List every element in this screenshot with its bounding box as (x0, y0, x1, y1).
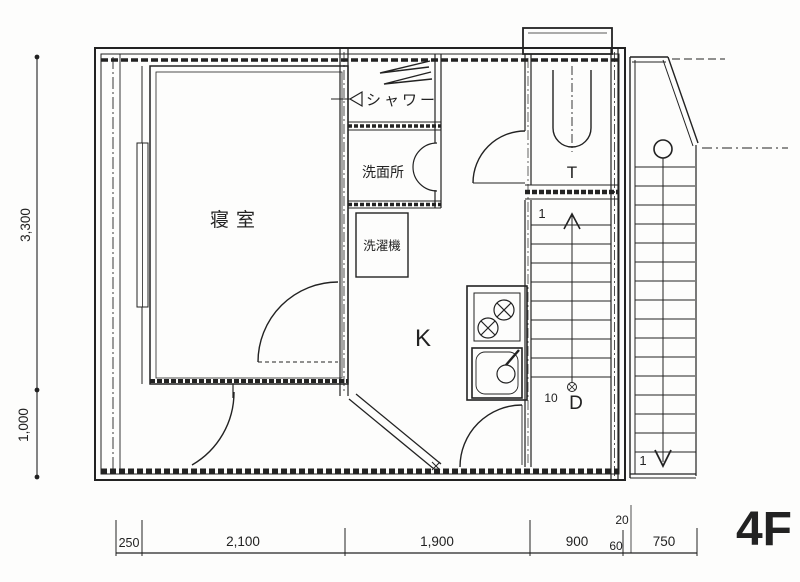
kitchen: K (349, 286, 527, 470)
dim-left-upper: 3,300 (18, 208, 33, 242)
dim-bottom-250: 250 (119, 536, 140, 550)
dim-bottom-20: 20 (615, 513, 629, 527)
dim-left-lower: 1,000 (16, 408, 31, 442)
dim-bottom-750: 750 (653, 534, 676, 549)
washroom-door (413, 143, 437, 191)
washroom: 洗面所 (348, 143, 441, 208)
dim-bottom-2100: 2,100 (226, 534, 260, 549)
interior-stairs-step-first: 1 (538, 206, 545, 221)
bedroom-window (137, 66, 148, 384)
interior-stairs: 1 10 D (531, 206, 611, 414)
toilet-door (473, 131, 525, 183)
washroom-label: 洗面所 (362, 164, 404, 180)
toilet-room: T (473, 54, 618, 467)
dim-bottom-900: 900 (566, 534, 589, 549)
kitchen-unit (467, 286, 527, 400)
floor-plan-canvas: 寝室 シャワー 洗面所 洗濯機 K (0, 0, 800, 582)
diagonal-wall (349, 394, 441, 470)
floor-label: 4F (736, 503, 792, 556)
hall-door (192, 384, 234, 465)
interior-stairs-landing-label: D (569, 393, 583, 414)
roof-bump-out (523, 28, 612, 54)
shower-screen (380, 61, 432, 84)
dim-bottom-60: 60 (609, 539, 623, 553)
dimension-bottom: 250 2,100 1,900 900 60 20 750 (116, 505, 697, 556)
toilet-bowl-icon (553, 66, 591, 152)
washing-machine: 洗濯機 (356, 213, 408, 277)
bedroom-room: 寝室 (137, 48, 348, 396)
bedroom-door (258, 282, 338, 362)
stove-burner-icon (478, 300, 514, 338)
stair-post-icon (654, 140, 672, 158)
shower-label: シャワー (366, 92, 438, 109)
interior-stairs-step-last: 10 (544, 391, 558, 405)
dimension-left: 3,300 1,000 (16, 55, 39, 480)
exterior-stairs-step-first: 1 (639, 453, 646, 468)
dim-bottom-1900: 1,900 (420, 534, 454, 549)
washing-machine-label: 洗濯機 (363, 238, 401, 253)
shower-head-icon (350, 92, 362, 106)
bedroom-label: 寝室 (210, 209, 262, 231)
kitchen-door (460, 405, 522, 467)
building-outline (95, 28, 625, 480)
kitchen-label: K (415, 325, 431, 352)
stairs-start-marker (568, 383, 577, 392)
toilet-label: T (567, 163, 577, 182)
sink-icon (472, 348, 522, 398)
exterior-stairs: 1 (630, 57, 788, 478)
